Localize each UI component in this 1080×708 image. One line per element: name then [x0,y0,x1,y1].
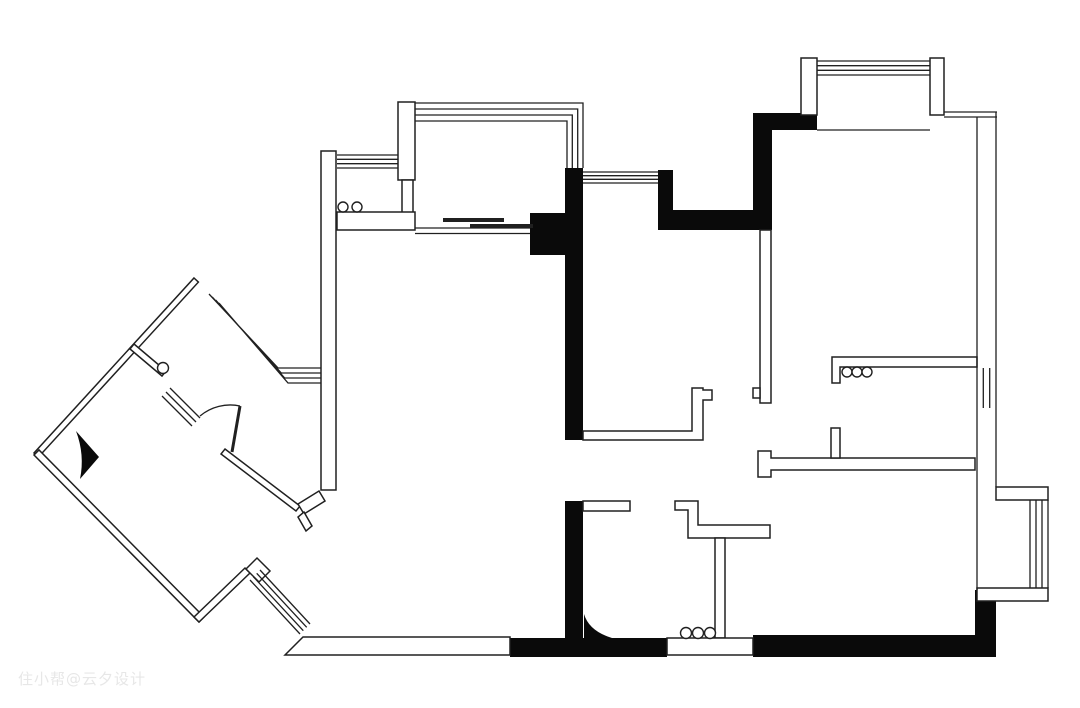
counter-kitchen [337,212,415,230]
fixture-hook-bedroom1-3 [862,367,872,377]
bay-right-bottom-band [977,588,1048,601]
black-wall-top-center [658,113,817,230]
window-bay-north [817,61,930,75]
wall-foyer-jog-tab [298,512,312,531]
fixture-entry-circle-1 [681,628,692,639]
wall-foyer-northeast [221,449,300,511]
fixture-pipe-balcony-1 [338,202,348,212]
wall-bathroom-north [583,501,630,511]
bay-right-top-band [996,487,1048,500]
window-foyer-upper [209,294,321,383]
fixture-hook-bedroom1-2 [852,367,862,377]
window-balcony-north [415,103,583,168]
wall-bedroom2-east [977,408,996,590]
wall-foyer-northwest [34,278,198,457]
floor-plan-canvas: 住小帮@云夕设计 [0,0,1080,708]
wall-hall-center [760,230,771,403]
window-balcony-west [337,155,398,168]
door-leaf-foyer [232,406,240,452]
pier-bay-north-left [801,58,817,115]
fixture-foyer-circle [158,363,169,374]
wall-hall-center-tab [753,388,760,398]
wall-kitchen-divider [402,180,413,213]
fixture-entry-circle-3 [705,628,716,639]
black-wall-bottom-right [753,590,996,657]
fixture-hook-bedroom1-1 [842,367,852,377]
window-bay-right [1030,500,1048,588]
entry-threshold [667,638,753,655]
pier-balcony [398,102,415,180]
wall-corridor-step [246,558,270,582]
watermark-text: 住小帮@云夕设计 [18,668,146,689]
fixture-pipe-balcony-2 [352,202,362,212]
wall-hallway [758,451,975,477]
wall-living-west [321,151,336,490]
wall-dining-divider [583,388,712,440]
pier-bay-north-right [930,58,944,115]
track-sliding-door [415,228,530,234]
floor-plan-drawing [0,0,1080,708]
fixture-entry-circle-2 [693,628,704,639]
wall-bedroom1-north-east [944,112,997,117]
wall-bedroom1-east [977,112,996,368]
window-kitchen-east [583,172,658,183]
black-wall-kitchen-column [530,168,583,440]
door-arc-foyer [200,405,240,416]
wall-hallway-stub [831,428,840,458]
wall-foyer-southeast [194,568,250,622]
wall-bathroom-step [675,501,770,538]
wall-bottom-south [285,637,510,655]
window-foyer-lower [162,388,200,426]
door-swing-foyer [76,431,99,479]
wall-bathroom-inner [715,538,725,638]
door-swing-bathroom [584,614,612,638]
window-bedroom1-east [977,368,996,408]
wall-foyer-jog [298,491,325,514]
wall-foyer-southwest [34,450,204,622]
